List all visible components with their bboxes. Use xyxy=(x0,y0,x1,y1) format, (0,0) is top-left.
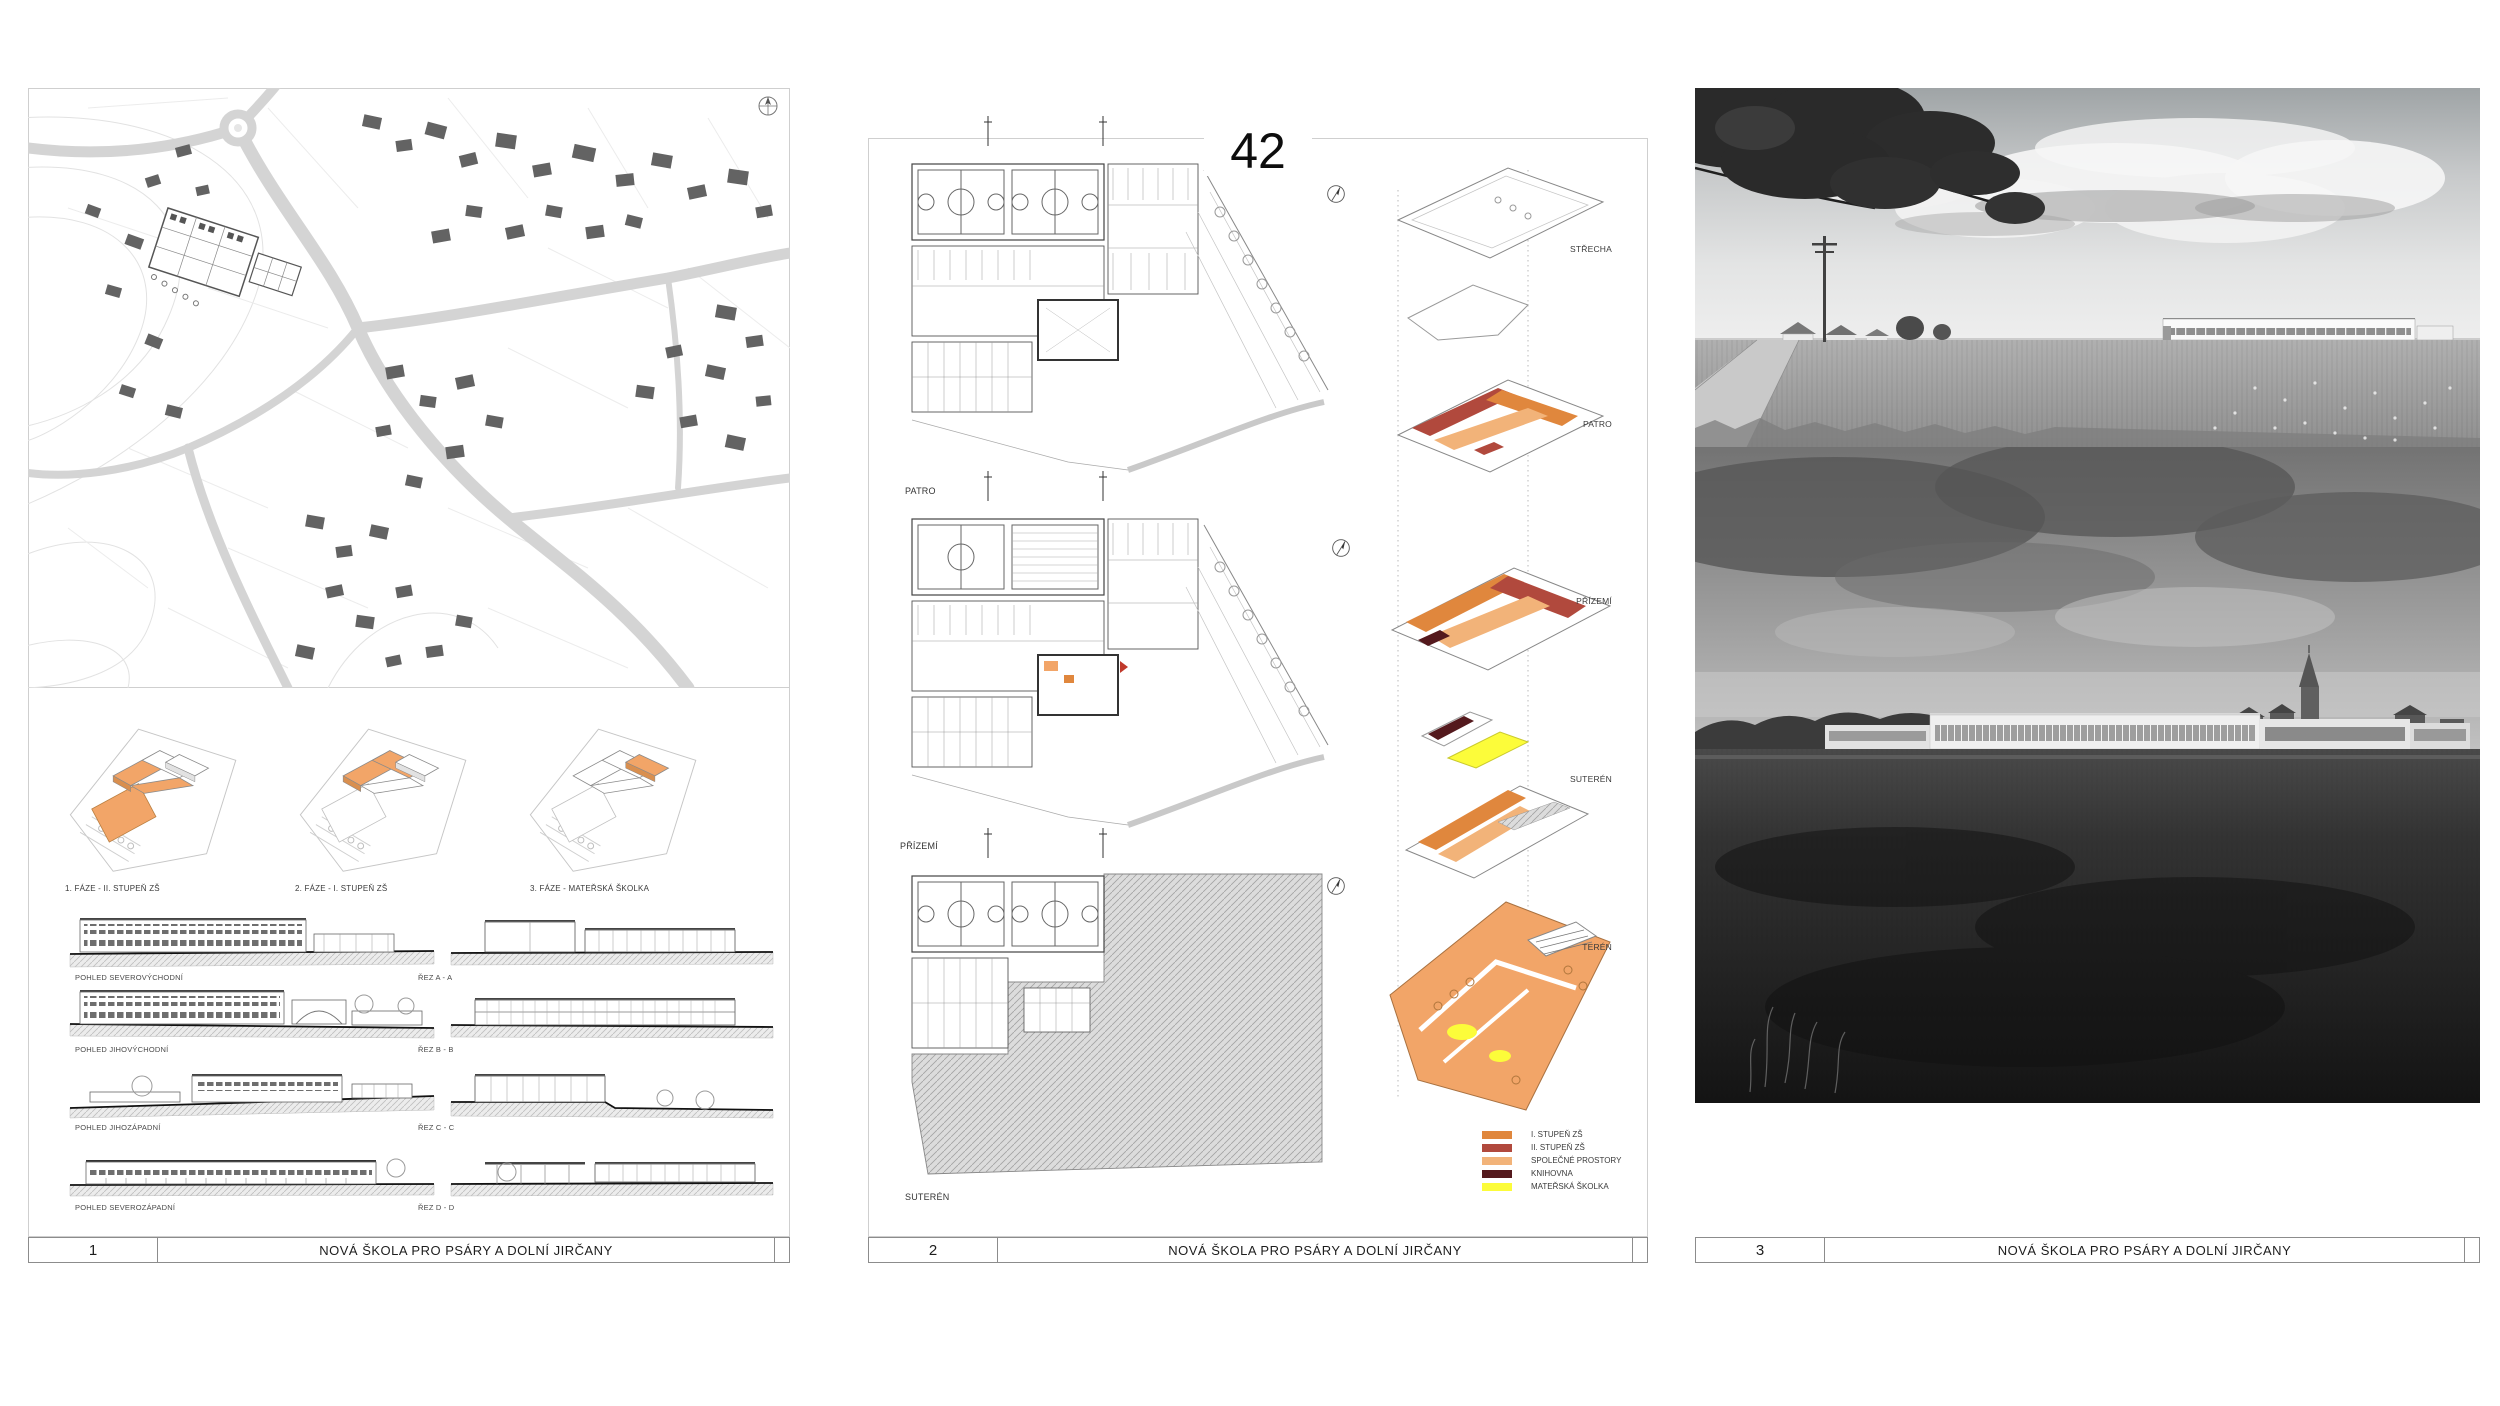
prizemi-plate xyxy=(1392,568,1610,670)
elevation-northwest xyxy=(62,1138,440,1200)
section-d xyxy=(445,1138,780,1200)
legend-swatch-1 xyxy=(1482,1144,1512,1152)
elevation-label-3: POHLED JIHOZÁPADNÍ xyxy=(75,1123,161,1132)
legend-label: SPOLEČNÉ PROSTORY xyxy=(1531,1156,1621,1165)
phase-caption-1: 1. FÁZE - II. STUPEŇ ZŠ xyxy=(65,884,160,893)
site-map xyxy=(28,88,790,688)
panel-2-titlebar: 2 NOVÁ ŠKOLA PRO PSÁRY A DOLNÍ JIRČANY xyxy=(868,1237,1648,1263)
axon-level-teren: TERÉN xyxy=(1512,942,1612,952)
panel-2-number: 2 xyxy=(869,1238,998,1262)
panel-1-titlebar: 1 NOVÁ ŠKOLA PRO PSÁRY A DOLNÍ JIRČANY xyxy=(28,1237,790,1263)
compass-icon xyxy=(1331,538,1351,558)
legend-swatch-3 xyxy=(1482,1170,1512,1178)
panel-2-title: NOVÁ ŠKOLA PRO PSÁRY A DOLNÍ JIRČANY xyxy=(998,1238,1632,1262)
elevation-label-1: POHLED SEVEROVÝCHODNÍ xyxy=(75,973,183,982)
school-building-distant xyxy=(2163,318,2453,340)
plan-label-suteren: SUTERÉN xyxy=(905,1192,949,1202)
roundabout xyxy=(224,114,252,142)
compass-icon xyxy=(1326,184,1346,204)
legend-label: KNIHOVNA xyxy=(1531,1169,1573,1178)
panel-1-title: NOVÁ ŠKOLA PRO PSÁRY A DOLNÍ JIRČANY xyxy=(158,1238,774,1262)
panel-3-title: NOVÁ ŠKOLA PRO PSÁRY A DOLNÍ JIRČANY xyxy=(1825,1238,2464,1262)
section-a xyxy=(445,908,780,970)
phase-caption-2: 2. FÁZE - I. STUPEŇ ZŠ xyxy=(295,884,387,893)
elevation-southwest xyxy=(62,1058,440,1120)
legend-label: I. STUPEŇ ZŠ xyxy=(1531,1130,1583,1139)
legend-label: II. STUPEŇ ZŠ xyxy=(1531,1143,1585,1152)
photomontage-day xyxy=(1695,88,2480,447)
compass-icon xyxy=(1326,876,1346,896)
suteren-plate xyxy=(1406,786,1588,878)
section-b xyxy=(445,980,780,1042)
floor-plan-prizemi xyxy=(888,465,1338,837)
legend-swatch-4 xyxy=(1482,1183,1512,1191)
teren-plate xyxy=(1390,902,1610,1110)
elevation-southeast xyxy=(62,980,440,1042)
exploded-axonometric xyxy=(1378,150,1618,1140)
panel-3-titlebar: 3 NOVÁ ŠKOLA PRO PSÁRY A DOLNÍ JIRČANY xyxy=(1695,1237,2480,1263)
panel-1-number: 1 xyxy=(29,1238,158,1262)
floor-plan-suteren xyxy=(888,822,1338,1194)
panel-2-titlebar-end xyxy=(1632,1238,1647,1262)
phase-axon-2 xyxy=(290,700,480,880)
elevation-northeast xyxy=(62,908,440,970)
axon-level-strecha: STŘECHA xyxy=(1512,244,1612,254)
phase-caption-3: 3. FÁZE - MATEŘSKÁ ŠKOLKA xyxy=(530,884,649,893)
section-label-3: ŘEZ C - C xyxy=(418,1123,454,1132)
axon-level-prizemi: PŘÍZEMÍ xyxy=(1512,596,1612,606)
legend-swatch-0 xyxy=(1482,1131,1512,1139)
legend-swatch-2 xyxy=(1482,1157,1512,1165)
phase-axon-3 xyxy=(520,700,710,880)
elevation-label-2: POHLED JIHOVÝCHODNÍ xyxy=(75,1045,168,1054)
panel-3-number: 3 xyxy=(1696,1238,1825,1262)
axon-level-suteren: SUTERÉN xyxy=(1512,774,1612,784)
north-arrow-icon xyxy=(759,97,777,115)
section-c xyxy=(445,1058,780,1120)
section-label-4: ŘEZ D - D xyxy=(418,1203,454,1212)
photomontage-dusk xyxy=(1695,447,2480,1103)
phase-axon-1 xyxy=(60,700,250,880)
entry-number: 42 xyxy=(1204,126,1312,176)
competition-board: 1. FÁZE - II. STUPEŇ ZŠ 2. FÁZE - I. STU… xyxy=(0,0,2500,1406)
legend-label: MATEŘSKÁ ŠKOLKA xyxy=(1531,1182,1609,1191)
section-label-2: ŘEZ B - B xyxy=(418,1045,454,1054)
axon-level-patro: PATRO xyxy=(1512,419,1612,429)
panel-1-titlebar-end xyxy=(774,1238,789,1262)
section-label-1: ŘEZ A - A xyxy=(418,973,452,982)
elevation-label-4: POHLED SEVEROZÁPADNÍ xyxy=(75,1203,175,1212)
panel-3-titlebar-end xyxy=(2464,1238,2479,1262)
